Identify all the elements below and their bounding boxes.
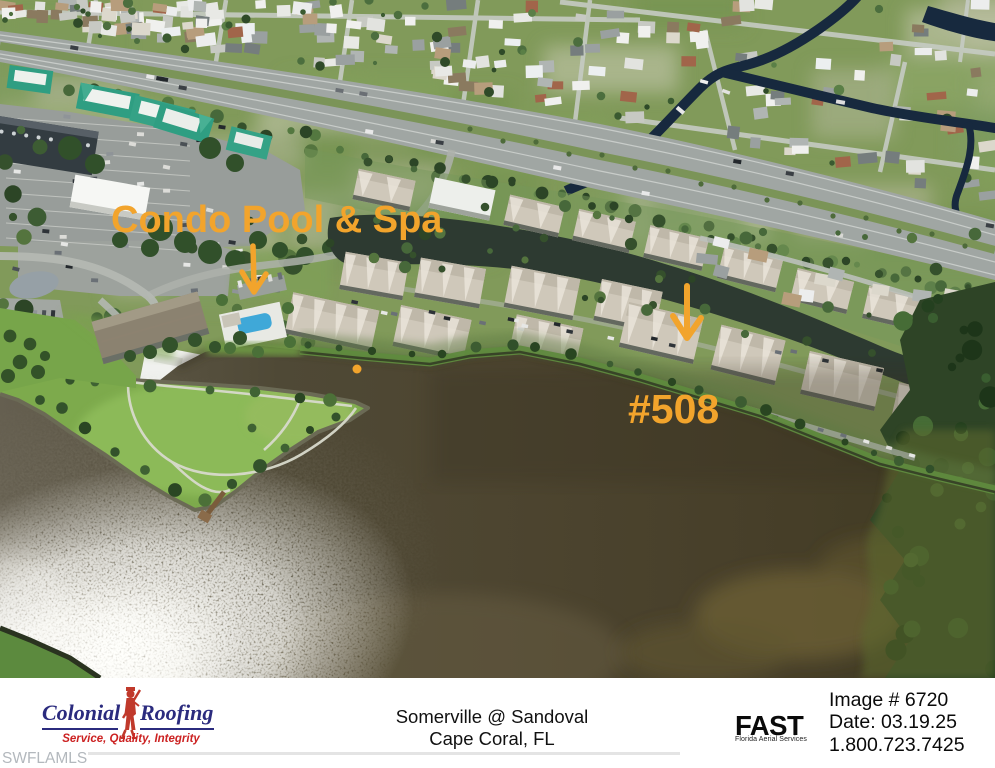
svg-text:#508: #508 [628, 386, 719, 432]
svg-text:Condo Pool & Spa: Condo Pool & Spa [111, 199, 443, 241]
